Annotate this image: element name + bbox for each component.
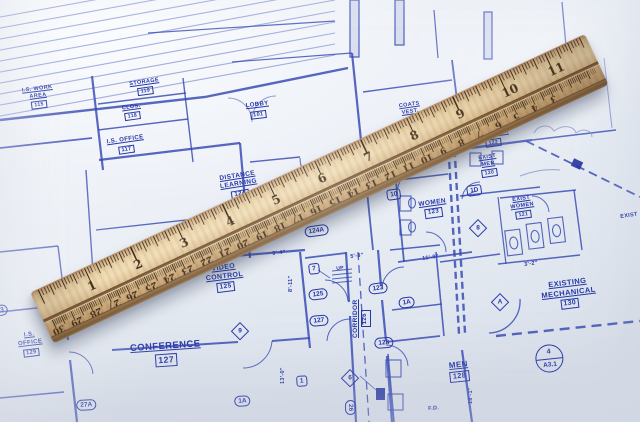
room-is-work-area: I.S. WORK AREA 115: [20, 84, 57, 111]
ruler-inch-number: 9: [454, 106, 467, 122]
room-exist-women: EXIST WOMEN 121: [506, 194, 539, 221]
ruler-cm-number: 12: [382, 167, 398, 181]
ruler-cm-number: 15: [327, 193, 343, 207]
ruler-cm-number: 21: [216, 245, 232, 259]
ruler-cm-number: 4: [530, 101, 540, 113]
section-marker: 4 A3.1: [534, 343, 565, 374]
ruler-cm-number: 9: [437, 144, 447, 156]
ruler-cm-number: 30: [51, 322, 67, 336]
ruler-cm-number: 22: [198, 253, 214, 267]
ruler-cm-number: 7: [474, 127, 484, 139]
room-number: 128: [449, 370, 470, 383]
dimension: 8'-11": [288, 276, 294, 292]
ruler-inch-number: 4: [223, 213, 236, 229]
room-name: I.S. WORK AREA: [20, 84, 55, 102]
room-name: I.S. OFFICE: [12, 330, 48, 350]
room-exist-men: EXIST MEN 120: [474, 152, 503, 179]
diamond-tag-label: 8: [473, 223, 484, 234]
room-name: CORRIDOR: [352, 299, 360, 338]
room-number: 126: [361, 310, 370, 327]
ruler-cm-number: 3: [548, 93, 558, 105]
dimension: 18'-1": [468, 387, 474, 404]
room-is-office-lower: I.S. OFFICE 129: [12, 330, 49, 359]
ruler-cm-number: 18: [272, 219, 288, 233]
ruler-cm-number: 5: [511, 110, 521, 122]
ruler-inch-number: 1: [85, 278, 98, 294]
ruler-cm-number: 28: [88, 305, 104, 319]
ruler-cm-number: 14: [345, 184, 361, 198]
room-number: 101: [250, 110, 267, 121]
ruler-inch-number: 5: [269, 192, 282, 208]
note-up: UP: [336, 265, 344, 272]
note-floor-drain: F.D.: [428, 405, 439, 412]
ruler-cm-number: 6: [493, 118, 503, 130]
ruler-cm-number: 20: [235, 236, 251, 250]
blueprint-photo: I.S. WORK AREA 115 STORAGE 119 CLOS. 118…: [0, 0, 640, 422]
ruler-cm-number: 27: [106, 296, 122, 310]
dimension: 13'-0": [280, 367, 286, 384]
room-number: 127: [155, 353, 178, 367]
ruler-cm-number: 11: [401, 159, 417, 173]
ruler-cm-number: 13: [364, 176, 380, 190]
hex-tag: 1: [296, 375, 307, 387]
ruler-inch-number: 10: [500, 81, 521, 101]
diamond-tag-label: A: [495, 297, 506, 308]
ruler-cm-number: 16: [309, 202, 325, 216]
hex-tag: 7: [308, 263, 320, 276]
ruler-cm-number: 26: [124, 288, 140, 302]
ruler-cm-number: 10: [419, 150, 435, 164]
ruler-cm-number: 19: [253, 227, 269, 241]
ruler-inch-number: 8: [408, 127, 421, 143]
room-men: MEN 128: [440, 358, 478, 384]
ruler-inch-number: 6: [316, 170, 329, 186]
door-tag: 26: [345, 400, 356, 415]
diamond-tag-label: 6: [345, 373, 356, 384]
ruler-cm-number: 25: [143, 279, 159, 293]
room-name: MEN: [440, 358, 477, 372]
ruler-cm-number: 23: [180, 262, 196, 276]
room-name: EXIST MEN: [474, 152, 502, 170]
room-number: 129: [23, 347, 40, 358]
ruler-cm-number: 24: [161, 270, 177, 284]
diamond-tag-label: 9: [235, 326, 246, 337]
door-tag: 27A: [76, 399, 97, 411]
ruler-inch-number: 3: [177, 235, 190, 251]
ruler-inch-number: 7: [362, 149, 375, 165]
room-name: EXIST WOMEN: [506, 194, 538, 212]
ruler-cm-number: 17: [290, 210, 306, 224]
ruler-inch-number: 2: [131, 256, 144, 272]
ruler-cm-number: 8: [456, 136, 466, 148]
room-corridor-center: CORRIDOR 126: [352, 299, 371, 338]
ruler-inch-number: 11: [546, 59, 567, 79]
ruler-cm-number: 29: [69, 313, 85, 327]
